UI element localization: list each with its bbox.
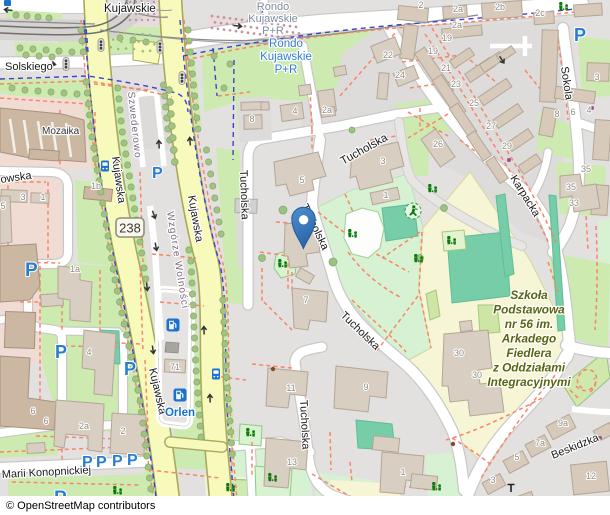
svg-text:2: 2 <box>418 0 423 10</box>
svg-text:P: P <box>96 454 107 471</box>
svg-text:Kujawskie: Kujawskie <box>104 3 156 15</box>
svg-text:Solskiego: Solskiego <box>5 61 53 73</box>
svg-text:27: 27 <box>486 121 496 131</box>
svg-text:6: 6 <box>43 416 48 426</box>
svg-text:P: P <box>25 260 38 281</box>
svg-text:30: 30 <box>472 370 482 380</box>
svg-text:P: P <box>127 452 138 469</box>
svg-text:Arkadego: Arkadego <box>501 332 556 346</box>
svg-text:35: 35 <box>581 164 591 174</box>
svg-text:Podstawowa: Podstawowa <box>493 303 565 317</box>
svg-text:P: P <box>574 25 586 45</box>
svg-text:19: 19 <box>442 33 452 43</box>
svg-text:© OpenStreetMap contributors: © OpenStreetMap contributors <box>6 500 156 512</box>
svg-text:Szkoła: Szkoła <box>510 288 548 302</box>
svg-text:4: 4 <box>586 105 591 115</box>
svg-text:Orlen: Orlen <box>165 407 195 419</box>
svg-text:P+R: P+R <box>262 25 284 37</box>
svg-text:29: 29 <box>502 141 512 151</box>
svg-text:z Oddziałami: z Oddziałami <box>492 361 566 375</box>
svg-text:1a: 1a <box>70 264 80 274</box>
svg-text:19: 19 <box>428 46 438 56</box>
svg-text:3: 3 <box>594 72 599 82</box>
svg-text:5: 5 <box>514 452 519 462</box>
svg-text:5: 5 <box>299 175 304 185</box>
svg-text:Integracyjnymi: Integracyjnymi <box>487 375 571 389</box>
svg-text:2a: 2a <box>322 105 332 115</box>
svg-text:nr 56 im.: nr 56 im. <box>505 317 554 331</box>
svg-text:12: 12 <box>586 471 596 481</box>
svg-text:2b: 2b <box>495 2 505 12</box>
svg-text:3: 3 <box>20 192 25 202</box>
svg-text:35: 35 <box>566 182 576 192</box>
svg-text:30: 30 <box>454 348 464 358</box>
svg-text:7: 7 <box>303 295 308 305</box>
svg-text:2a: 2a <box>79 421 89 431</box>
svg-text:26: 26 <box>433 139 443 149</box>
svg-text:4: 4 <box>292 106 297 116</box>
svg-text:P: P <box>112 453 123 470</box>
svg-text:9: 9 <box>363 382 368 392</box>
svg-text:8: 8 <box>249 114 254 124</box>
svg-text:1: 1 <box>383 190 388 200</box>
svg-text:24: 24 <box>395 70 405 80</box>
svg-text:P: P <box>152 165 163 182</box>
svg-text:3: 3 <box>380 156 385 166</box>
svg-text:Rondo: Rondo <box>269 38 303 50</box>
svg-text:7a: 7a <box>535 438 545 448</box>
svg-text:P: P <box>55 342 67 362</box>
svg-text:4: 4 <box>86 347 91 357</box>
svg-text:21: 21 <box>441 63 451 73</box>
svg-text:13: 13 <box>287 457 297 467</box>
svg-text:Mozaika: Mozaika <box>42 126 80 137</box>
svg-text:Kujawskie: Kujawskie <box>260 51 312 63</box>
svg-text:Tucholska: Tucholska <box>237 170 251 221</box>
svg-text:22: 22 <box>383 50 393 60</box>
svg-text:5: 5 <box>0 201 5 211</box>
svg-text:3: 3 <box>490 475 495 485</box>
svg-text:2a: 2a <box>452 20 462 30</box>
svg-text:2c: 2c <box>535 8 545 18</box>
svg-text:33: 33 <box>569 198 579 208</box>
svg-text:Rondo: Rondo <box>257 1 289 13</box>
svg-text:238: 238 <box>119 221 141 236</box>
svg-text:6: 6 <box>30 406 35 416</box>
svg-text:8: 8 <box>554 109 559 119</box>
svg-text:1b: 1b <box>91 181 101 191</box>
svg-text:Kujawskie: Kujawskie <box>248 13 298 25</box>
svg-text:1: 1 <box>400 467 405 477</box>
svg-text:P+R: P+R <box>275 64 298 76</box>
svg-text:P: P <box>124 359 136 379</box>
svg-text:25: 25 <box>469 98 479 108</box>
svg-text:Fiedlera: Fiedlera <box>506 346 552 360</box>
svg-text:71: 71 <box>170 362 180 372</box>
svg-text:6: 6 <box>570 107 575 117</box>
svg-text:11: 11 <box>286 383 295 393</box>
svg-text:9a: 9a <box>558 418 568 428</box>
svg-text:23: 23 <box>451 79 461 89</box>
svg-text:2a: 2a <box>453 4 463 14</box>
svg-text:1: 1 <box>40 192 45 202</box>
svg-text:2: 2 <box>120 426 125 436</box>
svg-text:P: P <box>82 454 93 471</box>
